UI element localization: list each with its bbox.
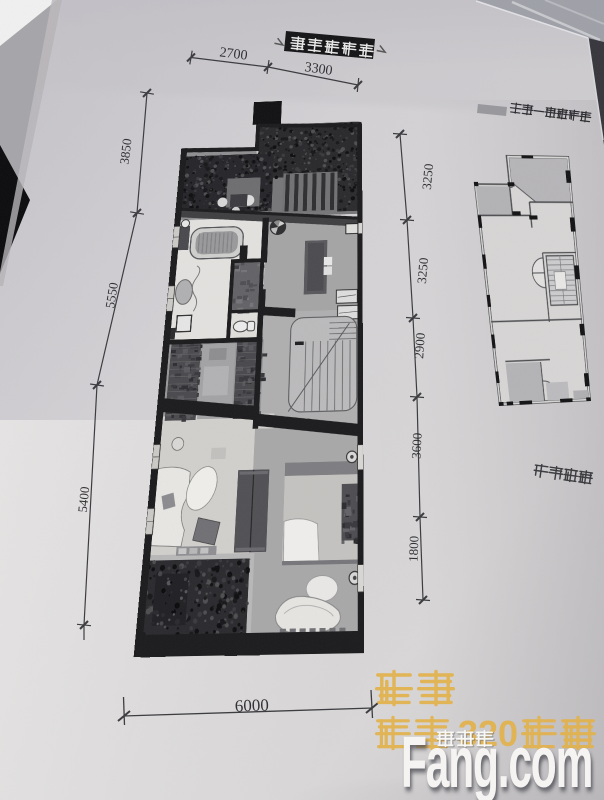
svg-text:Fang.com: Fang.com <box>401 721 592 800</box>
